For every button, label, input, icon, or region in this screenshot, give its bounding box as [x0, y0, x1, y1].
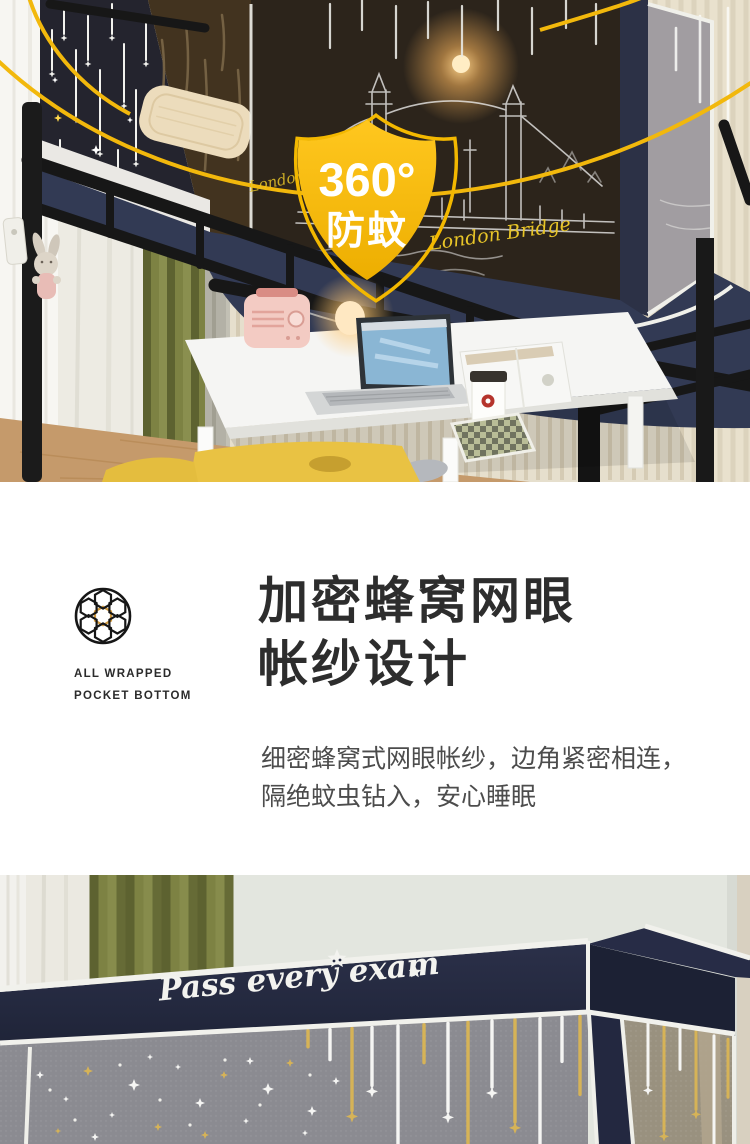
- tagline-line2: POCKET BOTTOM: [74, 685, 192, 707]
- badge-360-text: 360°: [318, 153, 415, 206]
- feature-title: 加密蜂窝网眼 帐纱设计: [258, 570, 576, 696]
- hero-photo-scene: London Bridge London Bridge 360° 防蚊: [0, 0, 750, 482]
- feature-tagline: ALL WRAPPED POCKET BOTTOM: [74, 663, 192, 707]
- bottom-photo-section: Pass every exam: [0, 875, 750, 1144]
- bottom-photo-scene: Pass every exam: [0, 875, 750, 1144]
- pink-speaker: [244, 288, 310, 348]
- feature-title-line1: 加密蜂窝网眼: [258, 570, 576, 633]
- hero-photo-section: London Bridge London Bridge 360° 防蚊: [0, 0, 750, 482]
- feature-desc-line2: 隔绝蚊虫钻入，安心睡眠: [261, 778, 686, 816]
- product-detail-page: London Bridge London Bridge 360° 防蚊 ALL …: [0, 0, 750, 1144]
- feature-title-line2: 帐纱设计: [258, 633, 576, 696]
- badge-fangwen-text: 防蚊: [326, 210, 408, 253]
- tagline-line1: ALL WRAPPED: [74, 663, 192, 685]
- coffee-cup: [470, 371, 507, 422]
- honeycomb-mesh-icon: [73, 586, 133, 646]
- bed-post-far-right: [696, 238, 714, 482]
- net-corner-strip: [620, 0, 648, 316]
- feature-desc-line1: 细密蜂窝式网眼帐纱，边角紧密相连，: [261, 740, 686, 778]
- feature-section: ALL WRAPPED POCKET BOTTOM 加密蜂窝网眼 帐纱设计 细密…: [0, 482, 750, 875]
- wall-corner: [737, 875, 750, 1144]
- feature-description: 细密蜂窝式网眼帐纱，边角紧密相连， 隔绝蚊虫钻入，安心睡眠: [261, 740, 686, 816]
- clamp-bracket: [3, 217, 28, 265]
